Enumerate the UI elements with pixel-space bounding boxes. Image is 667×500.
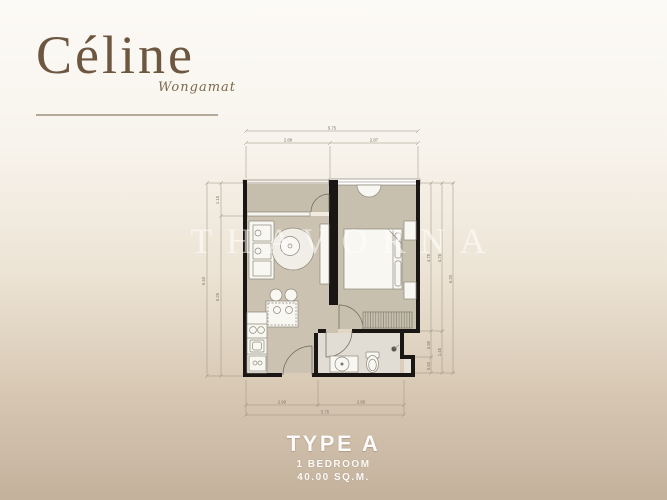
bathroom-vanity [330,356,358,372]
toilet [366,352,379,373]
wall-bath-top-left [318,329,326,333]
dim-top-seg2: 2.87 [370,138,379,143]
dining-chair [285,289,297,301]
stove-burner [258,327,265,334]
dim-right-mid2: 1.45 [437,347,442,356]
dim-right-inner2: 0.90 [426,340,431,349]
nightstand [404,282,416,299]
wall-bath-left [314,333,318,377]
balcony-floor-texture [247,184,329,212]
floor-plan: 5.75 2.88 2.87 2.90 2.85 5.75 6.40 1.15 … [0,0,667,500]
dim-left-total: 6.40 [201,276,206,285]
kitchen-counter [247,312,267,373]
dim-top-seg1: 2.88 [284,138,293,143]
dim-left-seg2: 5.25 [215,292,220,301]
dining-chair [270,289,282,301]
wall-bedroom-bottom [352,329,420,333]
dining-set [266,289,298,327]
dim-bottom-seg2: 2.85 [357,400,366,405]
watermark-text: THAVORNA [190,221,499,261]
unit-type-title: TYPE A [0,431,667,457]
wall-bottom-stub [312,373,318,377]
wall-bottom-left [243,373,282,377]
fridge [249,356,266,371]
dim-right-inner3: 0.60 [426,361,431,370]
wall-bath-bottom [314,373,415,377]
wall-bath-right [400,333,404,359]
unit-bedroom-count: 1 BEDROOM [0,459,667,470]
unit-area: 40.00 SQ.M. [0,472,667,483]
dim-bottom-seg1: 2.90 [278,400,287,405]
balcony-railing [243,180,329,183]
unit-type-block: TYPE A 1 BEDROOM 40.00 SQ.M. [0,431,667,483]
dim-bottom-total: 5.75 [321,410,330,415]
dining-table [266,301,298,327]
wall-shower-right [411,355,415,377]
wardrobe [363,312,412,328]
balcony-sliding-door [247,212,310,216]
dim-left-seg1: 1.15 [215,195,220,204]
pillow [395,261,401,286]
page-background: Céline Wongamat [0,0,667,500]
stove-burner [250,327,257,334]
wall-left [243,180,247,377]
dim-top-total: 5.75 [328,126,337,131]
dim-right-total: 6.20 [448,274,453,283]
